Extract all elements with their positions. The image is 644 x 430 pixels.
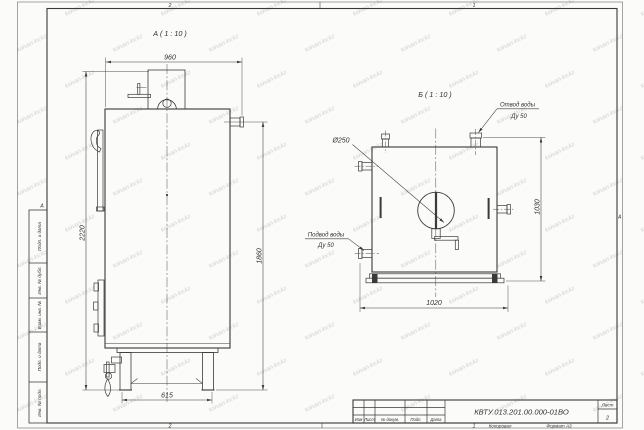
inlet-callout-title: Подвод воды <box>308 233 345 239</box>
outlet-callout-size: Ду 50 <box>510 114 527 120</box>
left-slot <box>380 197 382 218</box>
column-izm: Изм <box>355 417 363 422</box>
drawing-canvas: kolvan-kv.kzkolvan-kv.kzkolvan-kv.kzkolv… <box>0 0 644 430</box>
dim-2220-text: 2220 <box>80 225 87 242</box>
side-label-podp-data-1: Подп. и дата <box>37 222 42 251</box>
view-b-title: Б ( 1 : 10 ) <box>418 90 451 99</box>
dim-1030-text: 1030 <box>534 199 541 215</box>
paper-background <box>0 0 644 430</box>
copied-label: Копировал <box>489 424 512 429</box>
zone-label-left: А <box>39 204 44 210</box>
center-point-dot <box>166 194 168 196</box>
inlet-callout-size: Ду 50 <box>317 243 334 249</box>
zone-label-bottom-left: 2 <box>168 423 172 429</box>
side-label-inv-dubl: Инв. № дубл. <box>37 266 42 294</box>
sheet-label: Лист <box>601 403 614 408</box>
dim-960-text: 960 <box>164 54 176 61</box>
side-label-inv-podl: Инв. № подл. <box>37 388 42 417</box>
column-podp: Подп. <box>410 417 421 422</box>
dim-diameter-text: Ø250 <box>331 138 349 145</box>
zone-label-top-left: 2 <box>168 3 172 9</box>
sheet-number: 2 <box>605 416 609 422</box>
view-a-title: А ( 1 : 10 ) <box>152 29 187 38</box>
dim-1020-text: 1020 <box>426 300 442 307</box>
engineering-drawing-sheet: kolvan-kv.kzkolvan-kv.kzkolvan-kv.kzkolv… <box>0 0 644 430</box>
zone-label-right: А <box>617 215 622 221</box>
column-data: Дата <box>429 417 442 422</box>
zone-label-bottom-right: 1 <box>473 423 476 429</box>
drawing-designation: КВТУ.013.201.00.000-01ВО <box>474 408 569 417</box>
zone-label-top-right: 1 <box>473 3 476 9</box>
format-label: Формат А3 <box>546 424 572 429</box>
outlet-callout-title: Отвод воды <box>500 103 536 109</box>
side-label-podp-data-2: Подп. и дата <box>37 342 42 371</box>
dim-1860-text: 1860 <box>256 248 263 264</box>
right-slot <box>488 198 490 219</box>
column-list: Лист <box>363 417 375 422</box>
side-label-vzam-inv: Взам. инв. № <box>37 301 42 329</box>
column-doc: № докум. <box>381 417 399 422</box>
dim-615-text: 615 <box>161 393 173 400</box>
